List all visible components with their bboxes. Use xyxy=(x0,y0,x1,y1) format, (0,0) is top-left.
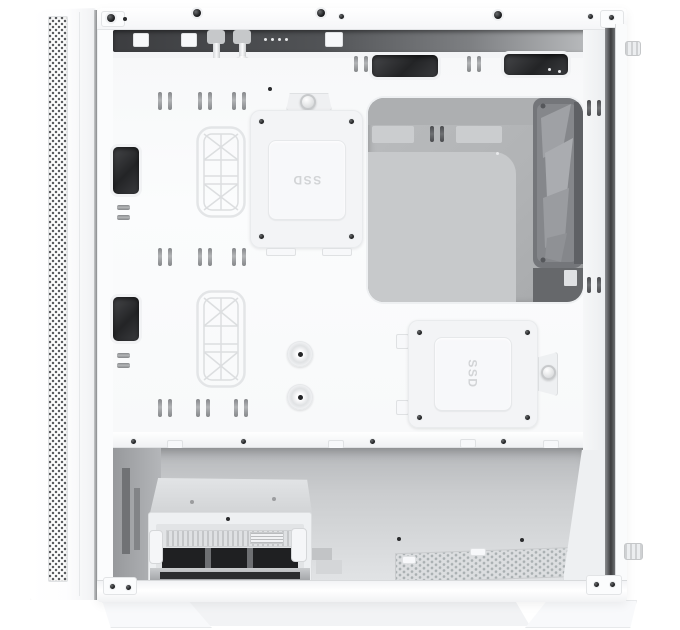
cable-tie-slot-pair xyxy=(232,92,246,110)
cage-screw xyxy=(226,517,230,521)
rear-thumbscrew-bottom xyxy=(624,543,643,560)
screw xyxy=(107,14,115,22)
ssd-bracket-top-foot xyxy=(322,248,352,256)
grommet-2 xyxy=(287,384,313,410)
stamped-cable-channel-1 xyxy=(196,126,246,218)
cable-clip xyxy=(181,33,197,47)
screw xyxy=(259,119,264,124)
ssd-bracket-top-plate: SSD xyxy=(268,140,346,220)
front-bracket-silhouette xyxy=(134,488,140,550)
screw-hole xyxy=(123,17,127,21)
cable-clip xyxy=(325,32,343,47)
floor-clip xyxy=(470,548,486,556)
case-foot-right xyxy=(525,600,637,628)
bottom-right-corner-bracket xyxy=(586,575,622,595)
screw xyxy=(131,439,136,444)
psu-divider xyxy=(113,432,583,448)
ssd-bracket-top-foot xyxy=(266,248,296,256)
tray-handle-left xyxy=(149,530,163,564)
glass-cutout-reflection-1 xyxy=(372,126,414,143)
bottom-left-corner-bracket xyxy=(103,577,137,595)
screw xyxy=(126,585,131,590)
screw xyxy=(193,9,201,17)
screw xyxy=(110,584,115,589)
screw xyxy=(259,234,264,239)
screw xyxy=(370,439,375,444)
standoff-hole xyxy=(268,87,272,91)
pin-hole xyxy=(264,38,267,41)
cage-bottom-slot xyxy=(160,572,300,579)
screw xyxy=(339,14,344,19)
cable-clip xyxy=(133,33,149,47)
glass-dot xyxy=(496,152,499,155)
stamped-channel-lines xyxy=(196,126,246,218)
ssd-bracket-top-thumbscrew xyxy=(300,94,316,110)
glass-cutout-reflection-2 xyxy=(456,126,502,143)
grommet-1 xyxy=(287,341,313,367)
bay-divider xyxy=(247,548,253,568)
drive-bay-opening xyxy=(162,548,298,568)
cable-tie-slot-pair xyxy=(117,353,130,368)
tray-handle-right xyxy=(291,528,307,562)
cable-tie-slot-pair xyxy=(198,248,212,266)
fan-cable-sticker xyxy=(564,270,577,286)
screw xyxy=(349,234,354,239)
cable-tie-slot-pair xyxy=(198,92,212,110)
screw-hole xyxy=(272,497,276,501)
glass-reflection xyxy=(368,152,516,302)
screw xyxy=(610,582,615,587)
rear-vent-slot-pair xyxy=(587,277,601,293)
cable-tie-slot-pair xyxy=(467,56,481,72)
glass-slot-pair xyxy=(430,126,444,142)
screw xyxy=(525,415,530,420)
screw xyxy=(594,582,599,587)
ssd-bracket-bottom-thumbscrew xyxy=(541,365,556,380)
screw xyxy=(317,9,325,17)
rear-outer-edge xyxy=(615,24,627,584)
cable-tie-slot-pair xyxy=(158,92,172,110)
top-frame-bar xyxy=(97,8,627,30)
front-panel-cable-2 xyxy=(233,30,251,44)
cable-tie-slot-pair xyxy=(234,399,248,417)
cable-cutout-left-1 xyxy=(113,147,139,194)
side-window xyxy=(368,98,583,302)
pc-case-photo: SSD SSD xyxy=(0,0,680,630)
cable-tie-slot-pair xyxy=(158,248,172,266)
cable-tie-slot-pair xyxy=(196,399,210,417)
screw xyxy=(349,119,354,124)
screw xyxy=(588,14,593,19)
cable-cutout-top-1 xyxy=(372,55,438,77)
front-bracket-silhouette xyxy=(122,468,130,554)
screw xyxy=(494,11,502,19)
cable-tie-slot-pair xyxy=(117,205,130,220)
pin-hole xyxy=(558,70,561,73)
ssd-bracket-bottom-plate: SSD xyxy=(434,337,512,411)
screw xyxy=(525,330,530,335)
bay-divider xyxy=(205,548,211,568)
screw xyxy=(501,439,506,444)
pin-hole xyxy=(548,68,551,71)
bottom-frame-rail xyxy=(97,580,627,602)
floor-clip xyxy=(402,556,416,564)
screw xyxy=(417,415,422,420)
drive-cage-top xyxy=(150,478,312,513)
floor-screw xyxy=(397,537,401,541)
screw-hole xyxy=(190,500,194,504)
rear-seam xyxy=(605,28,615,582)
floor-screw xyxy=(520,538,524,542)
pin-hole xyxy=(285,38,288,41)
front-panel-crease xyxy=(79,12,80,596)
pin-hole xyxy=(278,38,281,41)
floor-bracket-step xyxy=(312,548,332,560)
front-panel-cable-1 xyxy=(207,30,225,44)
cable-tie-slot-pair xyxy=(158,399,172,417)
front-panel-vent-strip xyxy=(48,16,68,582)
screw xyxy=(241,439,246,444)
rear-vent-slot-pair xyxy=(587,100,601,116)
floor-bracket-step xyxy=(316,560,342,574)
feet-shadow xyxy=(150,600,530,626)
rear-fan xyxy=(533,98,583,268)
stamped-cable-channel-2 xyxy=(196,290,246,388)
rear-thumbscrew-top xyxy=(625,41,641,56)
divider-clip xyxy=(460,439,476,448)
screw xyxy=(609,15,614,20)
rear-fan-graphic xyxy=(533,98,583,268)
cable-cutout-left-2 xyxy=(113,297,139,341)
cable-tie-slot-pair xyxy=(232,248,246,266)
pin-hole xyxy=(271,38,274,41)
screw xyxy=(417,330,422,335)
ssd-label-bottom: SSD xyxy=(466,359,480,388)
stamped-channel-lines xyxy=(196,290,246,388)
cable-tie-slot-pair xyxy=(354,56,368,72)
ssd-label-top: SSD xyxy=(292,173,321,187)
drive-tray-label xyxy=(250,532,284,544)
